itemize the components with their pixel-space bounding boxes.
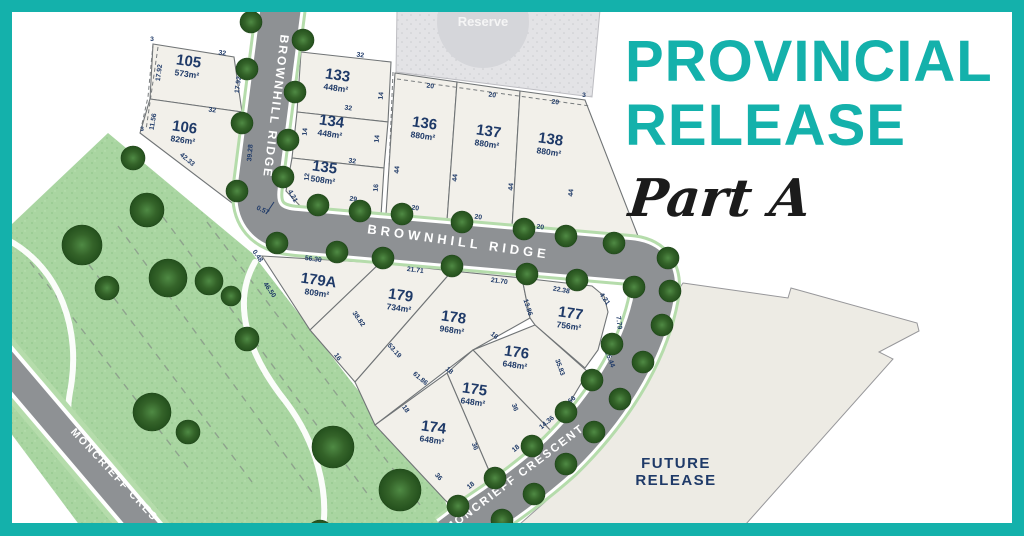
tree-icon	[623, 276, 645, 298]
tree-icon	[326, 241, 348, 263]
tree-icon	[659, 280, 681, 302]
tree-icon	[521, 435, 543, 457]
dimension-label: 39.28	[246, 144, 254, 162]
tree-icon	[566, 269, 588, 291]
tree-icon	[603, 232, 625, 254]
tree-icon	[292, 29, 314, 51]
lot-133-label: 133448m²	[323, 65, 351, 94]
dimension-label: 16	[373, 184, 381, 192]
lot-136-label: 136880m²	[410, 113, 438, 142]
frame-border-top	[0, 0, 1024, 12]
title-block: PROVINCIAL RELEASE Part A	[625, 30, 993, 229]
dimension-label: 44	[394, 166, 402, 174]
tree-icon	[583, 421, 605, 443]
dimension-label: 20	[474, 214, 483, 222]
tree-icon	[307, 194, 329, 216]
dimension-label: 14	[378, 92, 386, 100]
lot-138-label: 138880m²	[536, 129, 564, 158]
lot-137-polygon	[447, 82, 520, 228]
page-subtitle: Part A	[626, 168, 996, 229]
reserve-label: Reserve	[458, 14, 509, 29]
dimension-label: 32	[348, 158, 357, 166]
dimension-label: 14	[302, 128, 310, 136]
lot-177-label: 177756m²	[556, 303, 584, 332]
lot-106-label: 106826m²	[170, 117, 198, 146]
frame-border-bottom	[0, 523, 1024, 536]
frame-border-left	[0, 0, 12, 536]
dimension-label: 44	[508, 183, 516, 191]
tree-icon	[240, 11, 262, 33]
tree-icon	[555, 453, 577, 475]
dimension-label: 44	[452, 174, 460, 182]
dimension-label: 32	[344, 105, 353, 113]
lot-134-label: 134448m²	[317, 111, 346, 140]
tree-icon	[523, 483, 545, 505]
tree-icon	[516, 263, 538, 285]
tree-icon	[121, 146, 145, 170]
tree-icon	[555, 401, 577, 423]
tree-icon	[391, 203, 413, 225]
tree-icon	[62, 225, 102, 265]
tree-icon	[235, 327, 259, 351]
dimension-label: 14	[374, 135, 382, 143]
lot-105-label: 105573m²	[174, 51, 202, 80]
dimension-label: 32	[218, 50, 227, 58]
tree-icon	[133, 393, 171, 431]
tree-icon	[95, 276, 119, 300]
lot-137-label: 137880m²	[474, 121, 502, 150]
dimension-label: 20	[536, 224, 545, 232]
tree-icon	[581, 369, 603, 391]
lot-176-label: 176648m²	[502, 342, 530, 371]
tree-icon	[601, 333, 623, 355]
tree-icon	[555, 225, 577, 247]
dimension-label: 3	[582, 92, 586, 99]
tree-icon	[609, 388, 631, 410]
tree-icon	[312, 426, 354, 468]
tree-icon	[657, 247, 679, 269]
dimension-label: 44	[568, 189, 576, 197]
tree-icon	[221, 286, 241, 306]
tree-icon	[379, 469, 421, 511]
lot-175-label: 175648m²	[460, 379, 488, 408]
tree-icon	[272, 166, 294, 188]
dimension-label: 3	[140, 126, 144, 133]
lot-138-polygon	[512, 91, 638, 236]
tree-icon	[484, 467, 506, 489]
tree-icon	[632, 351, 654, 373]
lot-135-label: 135508m²	[310, 157, 338, 186]
frame-border-right	[1012, 0, 1024, 536]
tree-icon	[277, 129, 299, 151]
tree-icon	[451, 211, 473, 233]
future-release-label-line1: FUTURE	[641, 455, 711, 472]
dimension-label: 3	[150, 36, 154, 43]
tree-icon	[372, 247, 394, 269]
lot-179-label: 179734m²	[386, 285, 414, 314]
tree-icon	[231, 112, 253, 134]
lot-136-polygon	[386, 73, 457, 221]
lot-174-label: 174648m²	[419, 417, 448, 446]
dimension-label: 20	[426, 83, 435, 91]
tree-icon	[513, 218, 535, 240]
tree-icon	[349, 200, 371, 222]
tree-icon	[266, 232, 288, 254]
tree-icon	[447, 495, 469, 517]
dimension-label: 20	[488, 92, 497, 100]
tree-icon	[149, 259, 187, 297]
tree-icon	[226, 180, 248, 202]
dimension-label: 12	[304, 173, 312, 181]
tree-icon	[236, 58, 258, 80]
tree-icon	[441, 255, 463, 277]
page-title-line1: PROVINCIAL	[625, 30, 993, 94]
dimension-label: 20	[551, 99, 560, 107]
page-title-line2: RELEASE	[625, 94, 993, 158]
map-canvas: BROWNHILL RIDGEBROWNHILL RIDGEMONCRIEFF …	[0, 0, 1024, 536]
lot-178-label: 178968m²	[439, 307, 467, 336]
tree-icon	[195, 267, 223, 295]
tree-icon	[176, 420, 200, 444]
tree-icon	[284, 81, 306, 103]
tree-icon	[651, 314, 673, 336]
future-release-label-line2: RELEASE	[635, 472, 716, 489]
dimension-label: 32	[356, 52, 365, 60]
dimension-label: 7.79	[614, 316, 623, 330]
dimension-label: 32	[208, 107, 217, 115]
tree-icon	[130, 193, 164, 227]
